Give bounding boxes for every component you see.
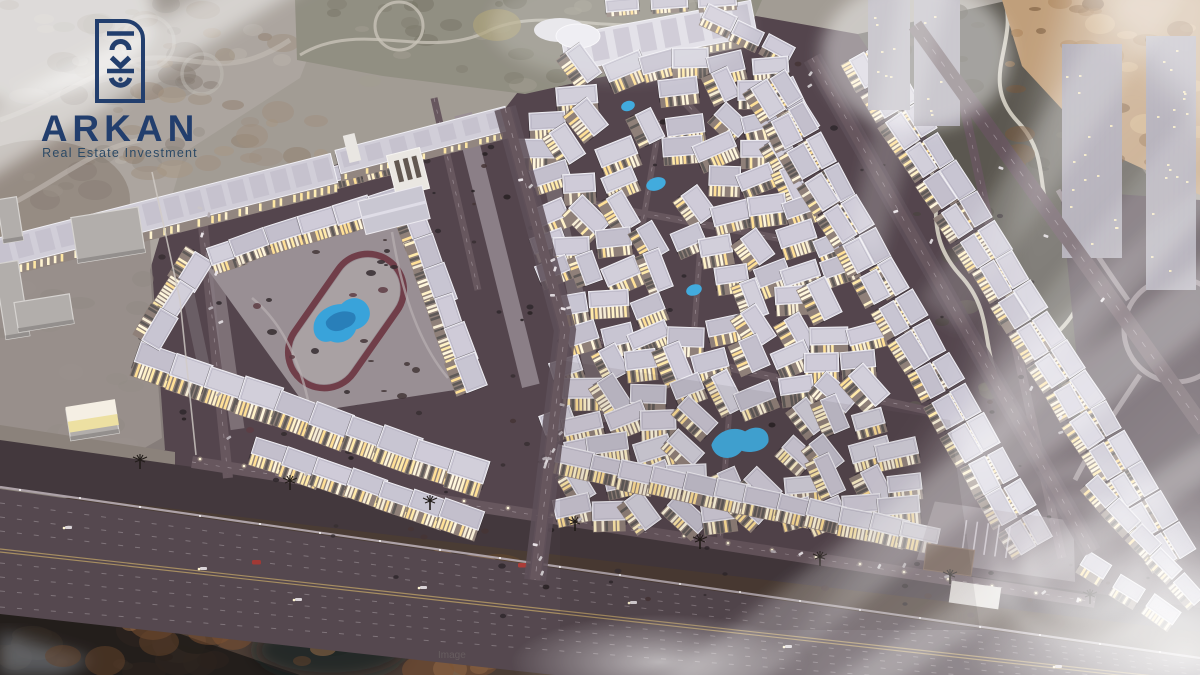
svg-text:Image: Image bbox=[438, 650, 466, 661]
svg-text:ARKAN: ARKAN bbox=[41, 108, 200, 149]
svg-text:Real Estate Investment: Real Estate Investment bbox=[42, 146, 198, 160]
